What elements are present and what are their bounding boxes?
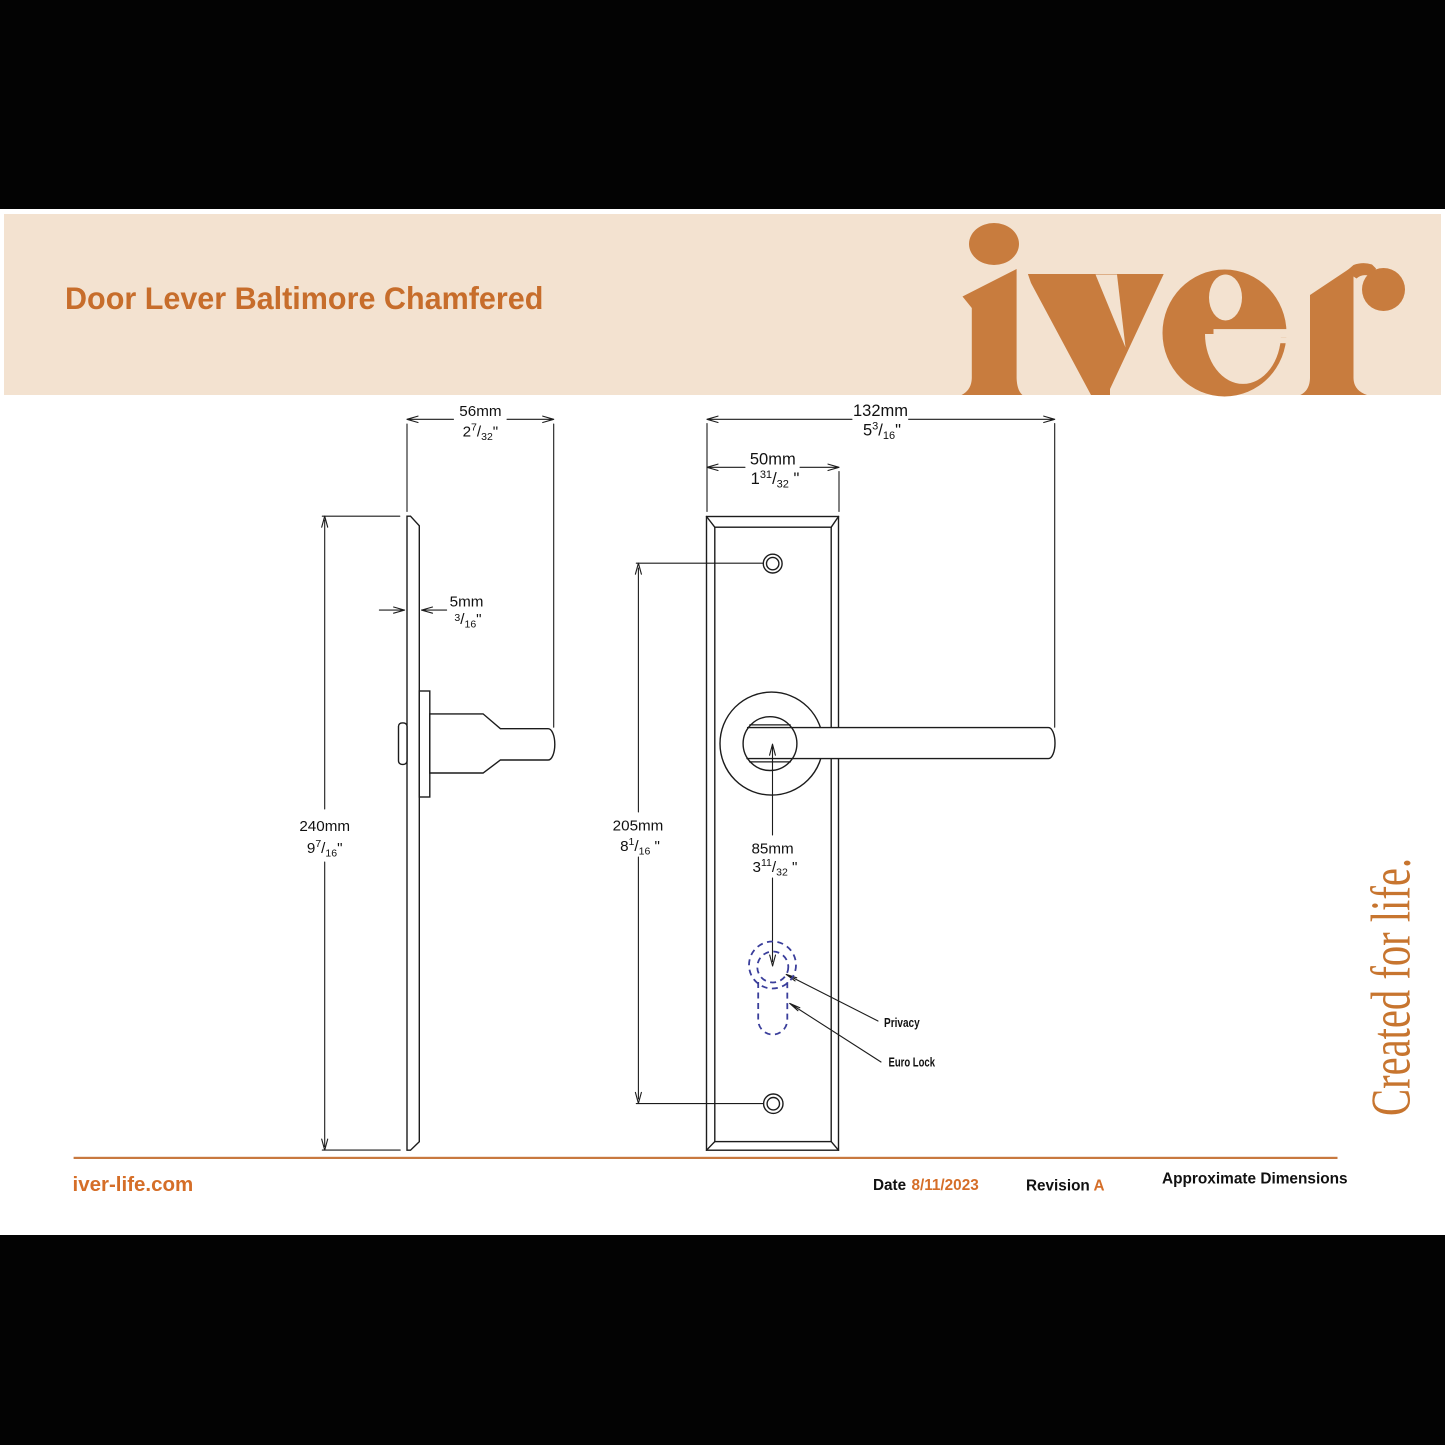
svg-text:Approximate Dimensions: Approximate Dimensions	[1162, 1171, 1348, 1188]
svg-text:131/32 ": 131/32 "	[751, 469, 800, 491]
svg-text:240mm: 240mm	[299, 818, 350, 835]
svg-text:205mm: 205mm	[613, 817, 664, 834]
svg-text:132mm: 132mm	[853, 402, 908, 420]
svg-text:97/16": 97/16"	[307, 838, 343, 860]
svg-text:50mm: 50mm	[750, 451, 796, 469]
svg-text:Euro Lock: Euro Lock	[889, 1056, 936, 1070]
svg-text:27/32": 27/32"	[463, 422, 499, 444]
svg-text:3/16": 3/16"	[454, 611, 481, 631]
svg-text:Revision: Revision	[1026, 1178, 1090, 1195]
svg-text:iver-life.com: iver-life.com	[73, 1173, 194, 1196]
svg-text:85mm: 85mm	[751, 841, 793, 858]
svg-text:Privacy: Privacy	[884, 1016, 920, 1030]
svg-text:81/16 ": 81/16 "	[620, 836, 660, 858]
svg-text:311/32 ": 311/32 "	[753, 857, 798, 879]
svg-text:Created for life.: Created for life.	[1361, 858, 1423, 1116]
svg-text:8/11/2023: 8/11/2023	[912, 1177, 979, 1194]
svg-text:A: A	[1094, 1178, 1105, 1195]
svg-text:53/16": 53/16"	[863, 421, 901, 443]
svg-text:5mm: 5mm	[450, 593, 484, 610]
svg-text:56mm: 56mm	[459, 403, 501, 420]
svg-text:Date: Date	[873, 1177, 906, 1194]
